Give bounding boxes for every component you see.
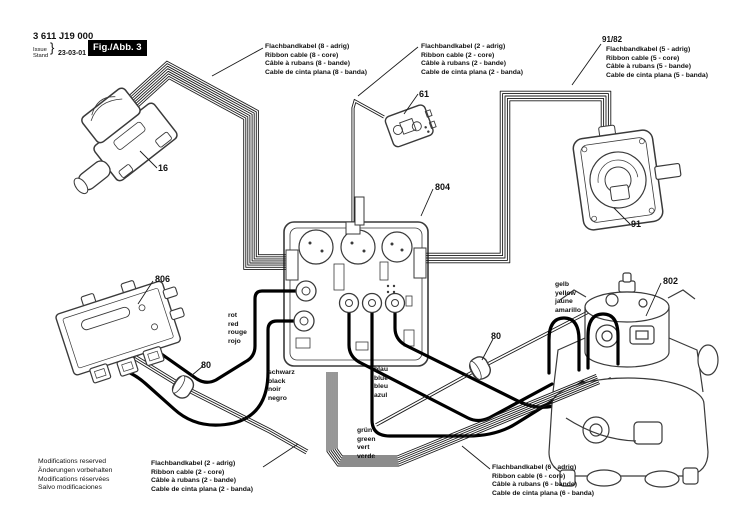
label-line: Modifications réservées [38,476,112,485]
label-ribbon-2core-bottom: Flachbandkabel (2 - adrig)Ribbon cable (… [151,460,253,495]
label-line: Ribbon cable (2 - core) [421,52,523,61]
label-line: Ribbon cable (5 - core) [606,55,708,64]
label-line: Flachbandkabel (8 - adrig) [265,43,367,52]
label-ribbon-8core: Flachbandkabel (8 - adrig)Ribbon cable (… [265,43,367,78]
wire-yellow-loops [549,314,618,373]
issue-stand-block: Issue Stand } [33,47,48,60]
label-line: yellow [555,290,581,299]
label-line: vert [357,444,376,453]
label-line: Câble à rubans (2 - bande) [151,477,253,486]
label-line: bleu [374,383,388,392]
callout-91: 91 [631,219,641,229]
label-line: Cable de cinta plana (8 - banda) [265,69,367,78]
callout-91-82: 91/82 [602,35,622,44]
label-wire-blue: blaubluebleuazul [374,366,388,400]
label-line: Cable de cinta plana (5 - banda) [606,72,708,81]
label-line: Ribbon cable (2 - core) [151,469,253,478]
label-wire-green: grüngreenvertverde [357,427,376,461]
label-line: azul [374,392,388,401]
label-line: noir [268,386,295,395]
label-line: Flachbandkabel (2 - adrig) [421,43,523,52]
label-line: Câble à rubans (2 - bande) [421,60,523,69]
label-line: Flachbandkabel (2 - adrig) [151,460,253,469]
wiring-diagram-page: 3 611 J19 000 Issue Stand } 23-03-01 Fig… [0,0,750,530]
label-line: negro [268,395,295,404]
label-line: Flachbandkabel (5 - adrig) [606,46,708,55]
receiver-plate-drawing [571,117,687,231]
label-line: Câble à rubans (6 - bande) [492,481,594,490]
pcb-post [355,197,364,225]
label-line: Modifications reserved [38,458,112,467]
modifications-note: Modifications reservedÄnderungen vorbeha… [38,458,112,493]
label-line: grün [357,427,376,436]
label-line: Änderungen vorbehalten [38,467,112,476]
label-line: black [268,378,295,387]
label-line: jaune [555,298,581,307]
label-ribbon-6core: Flachbandkabel (6 - adrig)Ribbon cable (… [492,464,594,499]
callout-80-left: 80 [201,360,211,370]
brace-glyph: } [50,45,54,51]
label-line: verde [357,453,376,462]
part-number: 3 611 J19 000 [33,31,93,42]
label-line: green [357,436,376,445]
label-line: Salvo modificaciones [38,484,112,493]
callout-80-right: 80 [491,331,501,341]
label-line: blau [374,366,388,375]
callout-16: 16 [158,163,168,173]
trigger-switch-drawing [43,76,179,205]
stand-label: Stand [33,53,48,59]
mounting-plate-drawing [52,268,196,390]
label-line: Câble à rubans (8 - bande) [265,60,367,69]
label-wire-yellow: gelbyellowjauneamarillo [555,281,581,315]
label-line: Cable de cinta plana (2 - banda) [151,486,253,495]
label-line: Cable de cinta plana (2 - banda) [421,69,523,78]
callout-61: 61 [419,89,429,99]
label-line: rot [228,312,247,321]
callout-802: 802 [663,276,678,286]
label-line: amarillo [555,307,581,316]
label-ribbon-5core: Flachbandkabel (5 - adrig)Ribbon cable (… [606,46,708,81]
label-line: Flachbandkabel (6 - adrig) [492,464,594,473]
callout-806: 806 [155,274,170,284]
label-wire-black: schwarzblacknoirnegro [268,369,295,403]
callout-804: 804 [435,182,450,192]
label-line: rouge [228,329,247,338]
figure-badge: Fig./Abb. 3 [88,40,147,56]
label-line: blue [374,375,388,384]
issue-date: 23-03-01 [58,50,86,57]
label-line: schwarz [268,369,295,378]
label-ribbon-2core-top: Flachbandkabel (2 - adrig)Ribbon cable (… [421,43,523,78]
ribbon-wire [420,98,604,260]
label-line: rojo [228,338,247,347]
label-line: Ribbon cable (6 - core) [492,473,594,482]
label-line: Cable de cinta plana (6 - banda) [492,490,594,499]
label-line: Ribbon cable (8 - core) [265,52,367,61]
label-line: red [228,321,247,330]
label-wire-red: rotredrougerojo [228,312,247,346]
label-line: gelb [555,281,581,290]
module-drawing [384,102,438,148]
label-line: Câble à rubans (5 - bande) [606,63,708,72]
